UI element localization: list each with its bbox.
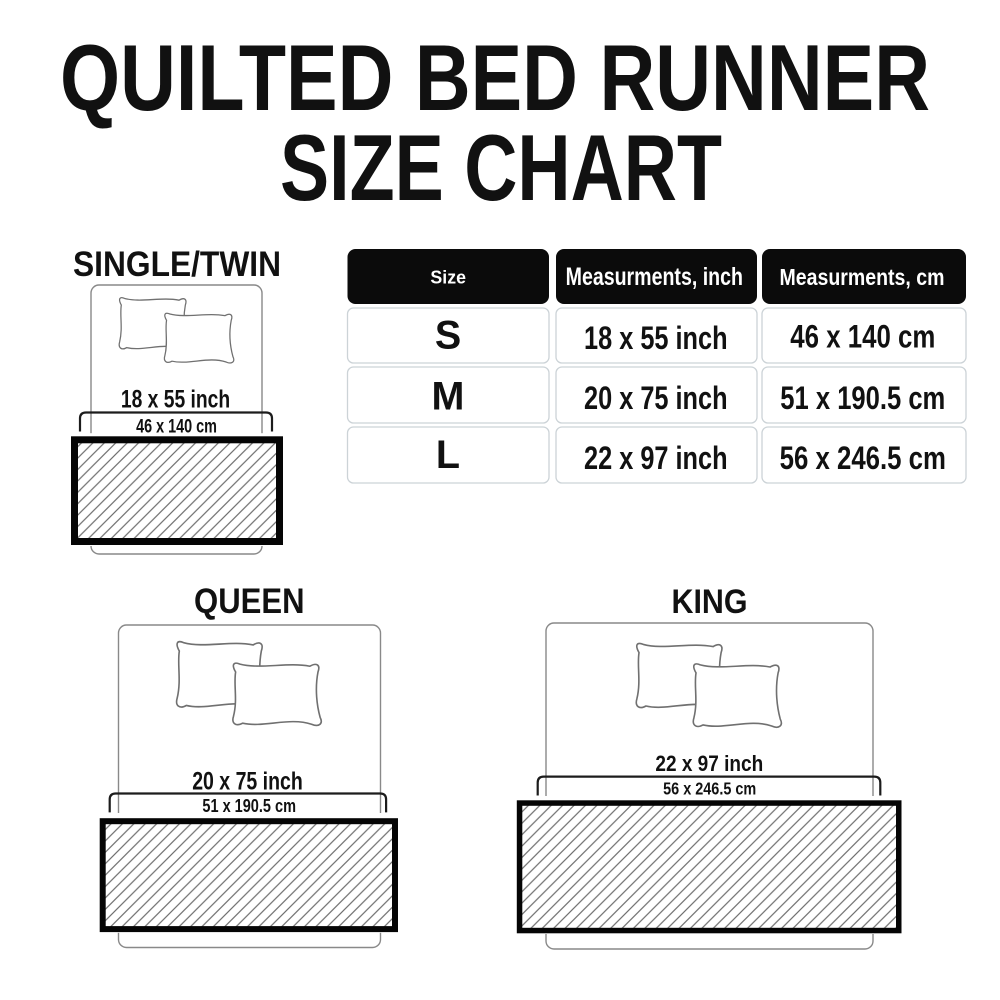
svg-text:18 x 55 inch: 18 x 55 inch — [121, 387, 230, 414]
svg-text:56 x 246.5 cm: 56 x 246.5 cm — [663, 779, 756, 799]
svg-text:22 x 97 inch: 22 x 97 inch — [584, 440, 728, 476]
svg-text:Measurments, cm: Measurments, cm — [780, 264, 945, 290]
svg-text:SIZE CHART: SIZE CHART — [280, 115, 722, 220]
svg-text:KING: KING — [672, 583, 748, 621]
svg-text:46 x 140 cm: 46 x 140 cm — [790, 319, 935, 355]
svg-text:SINGLE/TWIN: SINGLE/TWIN — [73, 245, 281, 284]
svg-text:22 x 97 inch: 22 x 97 inch — [655, 751, 763, 776]
svg-text:56 x 246.5 cm: 56 x 246.5 cm — [780, 440, 946, 476]
svg-text:L: L — [436, 433, 460, 477]
svg-text:M: M — [432, 375, 465, 419]
svg-text:S: S — [435, 314, 461, 358]
svg-text:20 x 75 inch: 20 x 75 inch — [192, 768, 303, 795]
svg-text:20 x 75 inch: 20 x 75 inch — [584, 380, 728, 416]
svg-text:18 x 55 inch: 18 x 55 inch — [584, 320, 728, 356]
svg-text:Measurments, inch: Measurments, inch — [566, 264, 743, 291]
svg-text:Size: Size — [430, 266, 466, 287]
svg-text:QUEEN: QUEEN — [194, 582, 305, 621]
svg-text:51 x 190.5 cm: 51 x 190.5 cm — [780, 380, 945, 416]
